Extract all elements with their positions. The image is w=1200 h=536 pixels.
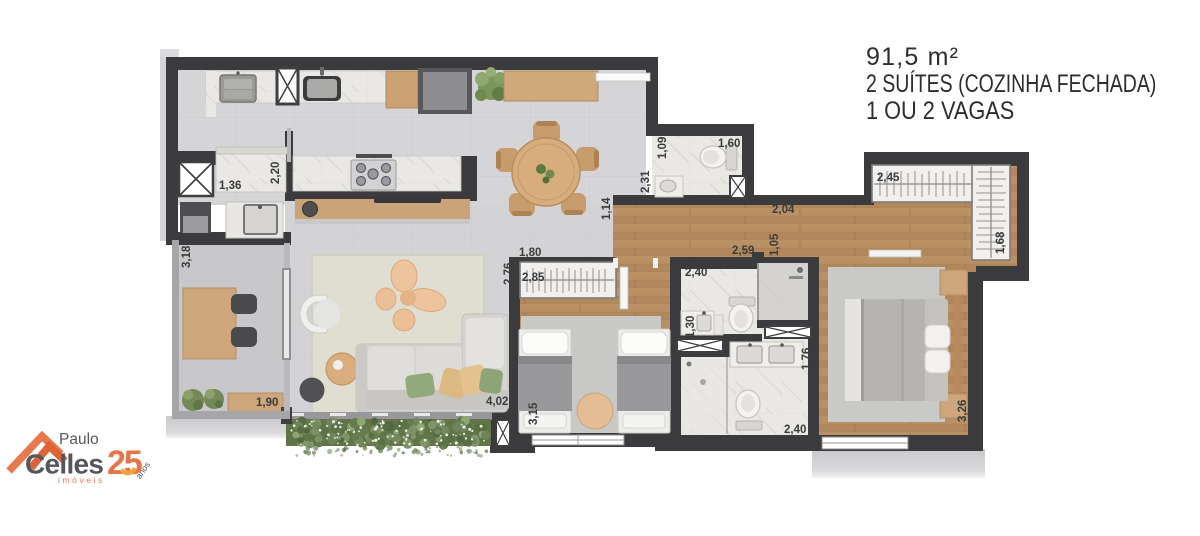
svg-text:2,45: 2,45 bbox=[877, 172, 900, 184]
svg-text:1,14: 1,14 bbox=[601, 197, 613, 220]
svg-text:1,90: 1,90 bbox=[256, 397, 278, 409]
svg-text:1,05: 1,05 bbox=[769, 233, 781, 256]
svg-text:2,40: 2,40 bbox=[784, 424, 806, 436]
svg-text:1,36: 1,36 bbox=[219, 180, 241, 192]
svg-text:2,76: 2,76 bbox=[503, 263, 515, 285]
svg-text:2,31: 2,31 bbox=[640, 170, 652, 193]
svg-text:1,68: 1,68 bbox=[995, 231, 1007, 254]
svg-text:2,20: 2,20 bbox=[270, 162, 282, 184]
svg-text:4,02: 4,02 bbox=[486, 396, 508, 408]
svg-text:1,30: 1,30 bbox=[685, 316, 697, 338]
svg-text:2,04: 2,04 bbox=[772, 204, 795, 216]
svg-text:2,40: 2,40 bbox=[685, 267, 707, 279]
svg-text:Paulo: Paulo bbox=[59, 431, 99, 448]
svg-text:3,26: 3,26 bbox=[957, 400, 969, 422]
svg-text:3,18: 3,18 bbox=[181, 245, 193, 268]
svg-text:1,09: 1,09 bbox=[657, 137, 669, 159]
svg-text:1,76: 1,76 bbox=[801, 348, 813, 370]
svg-text:2,59: 2,59 bbox=[732, 245, 754, 257]
svg-text:3,15: 3,15 bbox=[528, 402, 540, 425]
svg-text:1,60: 1,60 bbox=[718, 138, 740, 150]
svg-text:1,80: 1,80 bbox=[519, 247, 541, 259]
svg-text:imóveis: imóveis bbox=[58, 475, 105, 485]
svg-text:2,85: 2,85 bbox=[522, 272, 545, 284]
